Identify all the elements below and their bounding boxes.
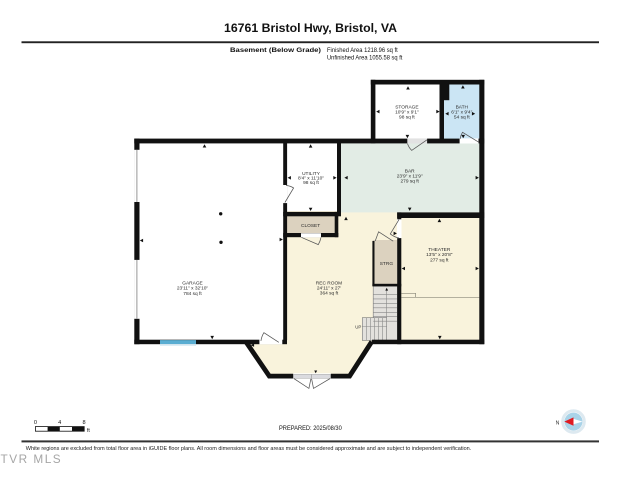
svg-text:364 sq ft: 364 sq ft [320, 291, 339, 297]
svg-text:THEATER: THEATER [428, 247, 451, 253]
svg-text:CLOSET: CLOSET [301, 223, 320, 229]
svg-text:N: N [556, 420, 560, 426]
svg-text:0: 0 [34, 420, 37, 426]
svg-text:UP: UP [355, 324, 361, 329]
svg-text:54 sq ft: 54 sq ft [454, 115, 470, 121]
svg-text:98 sq ft: 98 sq ft [303, 180, 319, 186]
svg-text:16761 Bristol Hwy, Bristol, VA: 16761 Bristol Hwy, Bristol, VA [224, 21, 397, 35]
svg-text:Unfinished Area 1055.58 sq ft: Unfinished Area 1055.58 sq ft [327, 55, 403, 62]
svg-text:6'1" x 9'4": 6'1" x 9'4" [451, 110, 472, 116]
svg-text:STORAGE: STORAGE [395, 104, 418, 110]
svg-text:GARAGE: GARAGE [182, 280, 203, 286]
svg-text:13'5" x 20'8": 13'5" x 20'8" [426, 252, 453, 258]
svg-text:98 sq ft: 98 sq ft [399, 115, 415, 121]
svg-text:23'11" x 32'10": 23'11" x 32'10" [177, 286, 209, 292]
svg-text:Basement (Below Grade): Basement (Below Grade) [230, 47, 321, 54]
svg-text:White regions are excluded fro: White regions are excluded from total fl… [26, 446, 471, 452]
svg-text:24'11" x 27': 24'11" x 27' [317, 286, 341, 292]
svg-text:10'9" x 9'1": 10'9" x 9'1" [395, 110, 419, 116]
svg-text:279 sq ft: 279 sq ft [400, 178, 419, 184]
svg-text:REC ROOM: REC ROOM [316, 280, 342, 286]
svg-text:277 sq ft: 277 sq ft [430, 258, 449, 264]
svg-text:STRG: STRG [380, 261, 394, 267]
svg-text:Finished Area 1218.96 sq ft: Finished Area 1218.96 sq ft [327, 47, 398, 54]
svg-text:PREPARED: 2025/08/30: PREPARED: 2025/08/30 [279, 425, 342, 432]
svg-text:4: 4 [58, 420, 61, 426]
svg-text:TVR MLS: TVR MLS [1, 452, 63, 466]
svg-text:BATH: BATH [456, 104, 469, 110]
svg-text:8: 8 [82, 420, 85, 426]
svg-text:784 sq ft: 784 sq ft [183, 291, 202, 297]
